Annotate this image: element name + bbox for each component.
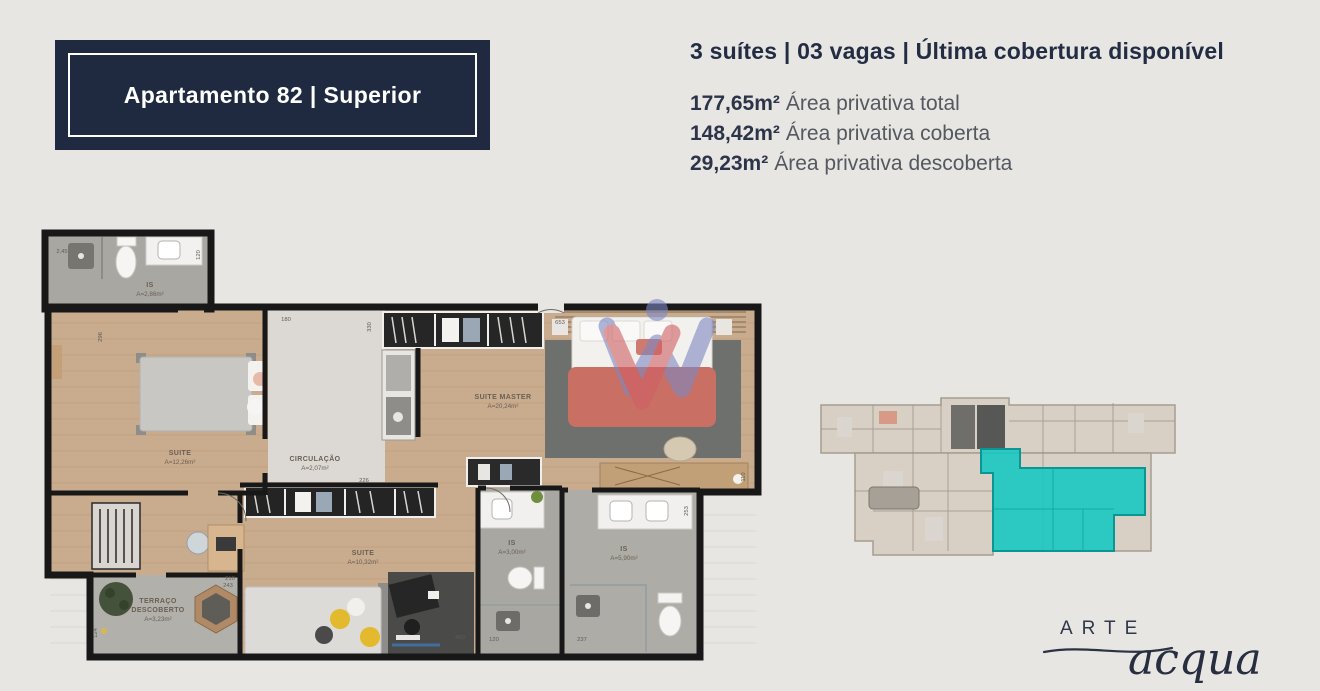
toilet-icon bbox=[659, 606, 681, 636]
label-is-right-area: A=5,90m² bbox=[610, 555, 637, 562]
plant-icon bbox=[99, 582, 133, 616]
area-covered-value: 148,42m² bbox=[690, 122, 780, 145]
plant-leaf-icon bbox=[119, 600, 129, 610]
summary-block: 3 suítes | 03 vagas | Última cobertura d… bbox=[690, 38, 1300, 179]
keyboard-icon bbox=[396, 635, 420, 640]
bed-icon bbox=[140, 357, 252, 431]
dim-closet-top: 180 bbox=[281, 317, 291, 323]
toilet-tank-icon bbox=[658, 593, 682, 603]
label-suite-lower-area: A=10,32m² bbox=[348, 559, 379, 566]
dresser-icon bbox=[52, 345, 62, 379]
key-plan bbox=[813, 391, 1185, 561]
toilet-icon bbox=[508, 567, 532, 589]
folded-shirt-icon bbox=[442, 318, 459, 342]
area-list: 177,65m²Área privativa total 148,42m²Áre… bbox=[690, 89, 1300, 179]
pot-icon bbox=[101, 628, 107, 634]
throw-pillow-icon bbox=[247, 399, 263, 415]
paper-icon bbox=[428, 591, 439, 599]
pillow-icon bbox=[315, 626, 333, 644]
brand-logo-svg: ARTE acqua bbox=[1038, 596, 1288, 691]
folded-shirt-icon bbox=[463, 318, 480, 342]
keyplan-core-icon bbox=[977, 405, 1005, 449]
dim-master-top: 653 bbox=[555, 320, 565, 326]
room-is-upper bbox=[45, 233, 211, 314]
label-terraco-line2: DESCOBERTO bbox=[131, 607, 184, 614]
keyplan-bed-icon bbox=[837, 417, 852, 437]
sink-icon bbox=[610, 501, 632, 521]
chair-icon bbox=[404, 619, 420, 635]
dim-bath-side: 120 bbox=[196, 250, 202, 260]
area-total-label: Área privativa total bbox=[786, 92, 960, 115]
area-total: 177,65m²Área privativa total bbox=[690, 89, 1300, 119]
apartment-title: Apartamento 82 | Superior bbox=[68, 53, 477, 137]
label-suite-master-area: A=20,24m² bbox=[488, 403, 519, 410]
dim-wardrobe-top: 226 bbox=[359, 478, 369, 484]
shower-drain-icon bbox=[78, 253, 84, 259]
area-uncovered-value: 29,23m² bbox=[690, 152, 768, 175]
label-suite-left-area: A=12,26m² bbox=[165, 459, 196, 466]
label-circulacao-area: A=2,07m² bbox=[301, 465, 328, 472]
desk-icon bbox=[600, 463, 748, 489]
dim-bath-width: 2,45 bbox=[56, 249, 67, 255]
plant-icon bbox=[531, 491, 543, 503]
label-suite-master: SUITE MASTER bbox=[475, 394, 532, 401]
floor-plan: IS A=2,86m² SUITE A=12,26m² CIRCULAÇÃO A… bbox=[40, 227, 762, 663]
keyplan-core-icon bbox=[951, 405, 975, 449]
area-uncovered-label: Área privativa descoberta bbox=[774, 152, 1012, 175]
cabinet-shelf-icon bbox=[386, 355, 411, 391]
toilet-icon bbox=[116, 246, 136, 278]
shower-drain-icon bbox=[505, 618, 511, 624]
keyplan-bed-icon bbox=[879, 411, 897, 424]
label-is-upper-area: A=2,86m² bbox=[136, 291, 163, 298]
cabinet-knob-icon bbox=[393, 412, 403, 422]
logo-acqua-text: acqua bbox=[1128, 634, 1262, 685]
keyplan-bed-icon bbox=[1128, 413, 1144, 433]
label-suite-left: SUITE bbox=[169, 450, 192, 457]
label-is-middle: IS bbox=[508, 540, 515, 547]
dim-terrace-top: 243 bbox=[223, 583, 233, 589]
toilet-tank-icon bbox=[117, 237, 136, 246]
folded-shirt-icon bbox=[295, 492, 311, 512]
area-uncovered: 29,23m²Área privativa descoberta bbox=[690, 149, 1300, 179]
plant-leaf-icon bbox=[105, 588, 115, 598]
label-circulacao: CIRCULAÇÃO bbox=[289, 454, 340, 463]
brochure-page: Apartamento 82 | Superior 3 suítes | 03 … bbox=[0, 0, 1320, 691]
bed-icon bbox=[245, 587, 381, 655]
area-total-value: 177,65m² bbox=[690, 92, 780, 115]
label-is-middle-area: A=3,00m² bbox=[498, 549, 525, 556]
label-suite-lower: SUITE bbox=[352, 550, 375, 557]
apartment-title-box: Apartamento 82 | Superior bbox=[55, 40, 490, 150]
sink-icon bbox=[646, 501, 668, 521]
keyplan-bed-icon bbox=[925, 517, 943, 541]
area-covered: 148,42m²Área privativa coberta bbox=[690, 119, 1300, 149]
dim-is-right-side: 253 bbox=[684, 506, 690, 516]
summary-headline: 3 suítes | 03 vagas | Última cobertura d… bbox=[690, 38, 1300, 65]
pillow-icon bbox=[330, 609, 350, 629]
dim-office-desk: 210 bbox=[225, 576, 235, 582]
sink-icon bbox=[492, 499, 512, 519]
nightstand-icon bbox=[716, 319, 732, 335]
pillow-icon bbox=[360, 627, 380, 647]
label-terraco: TERRAÇO bbox=[139, 598, 177, 605]
computer-icon bbox=[216, 537, 236, 551]
label-is-upper: IS bbox=[146, 282, 153, 289]
closet-item-icon bbox=[500, 464, 512, 480]
folded-shirt-icon bbox=[316, 492, 332, 512]
dim-terrace-side: 124 bbox=[93, 627, 99, 637]
area-covered-label: Área privativa coberta bbox=[786, 122, 990, 145]
watermark-dot-icon bbox=[646, 299, 668, 321]
pillow-icon bbox=[347, 598, 365, 616]
dim-is-right-width: 237 bbox=[577, 637, 587, 643]
label-terraco-area: A=3,23m² bbox=[144, 616, 171, 623]
mirror-icon bbox=[187, 532, 209, 554]
sink-icon bbox=[158, 241, 180, 259]
brand-logo: ARTE acqua bbox=[1038, 596, 1288, 691]
closet-item-icon bbox=[478, 464, 490, 480]
shower-drain-icon bbox=[585, 603, 591, 609]
dim-closet-side: 330 bbox=[367, 322, 373, 332]
chair-icon bbox=[664, 437, 696, 461]
dim-is-middle-width: 120 bbox=[489, 637, 499, 643]
toilet-tank-icon bbox=[534, 567, 544, 589]
dim-suite-desk: 400 bbox=[455, 635, 465, 641]
label-is-right: IS bbox=[620, 546, 627, 553]
dim-suite-left-side: 296 bbox=[98, 332, 104, 342]
keyplan-car-icon bbox=[869, 487, 919, 509]
dim-master-desk-side: 110 bbox=[741, 472, 747, 481]
